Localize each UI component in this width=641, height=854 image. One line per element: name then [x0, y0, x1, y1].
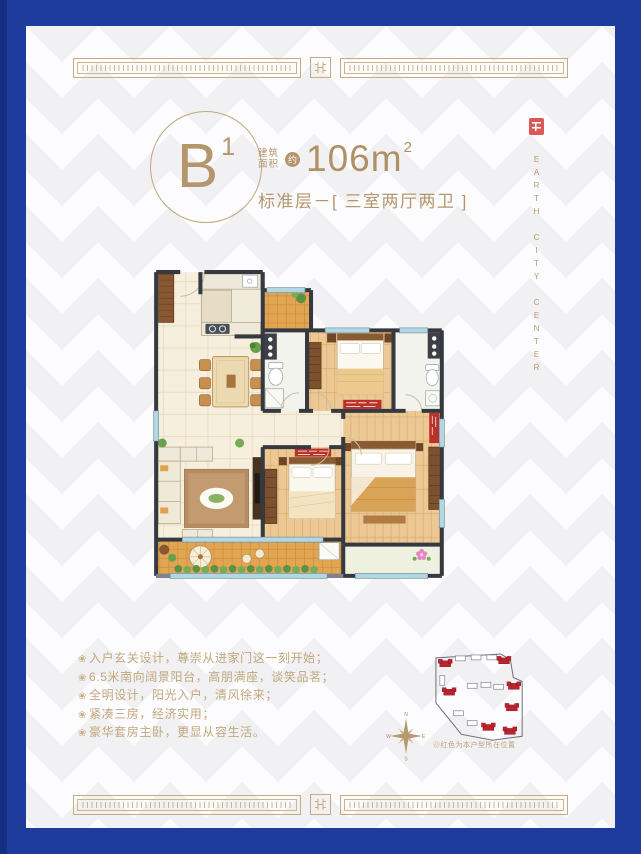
entry-hall — [159, 274, 174, 322]
poster-canvas: B1 建筑面积 约 106m 2 标准层－[ 三室两厅两卫 ] EARTH CI… — [26, 26, 615, 828]
svg-text:S: S — [404, 757, 408, 763]
highlighted-buildings — [438, 656, 520, 734]
brand-seal-icon — [529, 118, 544, 135]
flower-bay — [343, 545, 442, 576]
dimension-tag — [429, 413, 439, 443]
svg-text:E: E — [422, 734, 426, 740]
feature-item: ❀入户玄关设计，尊崇从进家门这一刻开始； — [78, 650, 334, 669]
flower-bullet-icon: ❀ — [78, 710, 87, 721]
flower-bullet-icon: ❀ — [78, 654, 87, 665]
floor-plan-image — [142, 260, 466, 604]
border-medallion-icon — [310, 794, 331, 815]
flower-bullet-icon: ❀ — [78, 673, 87, 684]
feature-item: ❀全明设计，阳光入户，清风徐来； — [78, 687, 334, 706]
floor-type-subtitle: 标准层－[ 三室两厅两卫 ] — [258, 187, 468, 212]
greek-key-box — [340, 58, 568, 78]
area-superscript: 2 — [404, 139, 412, 156]
plant — [235, 439, 244, 448]
compass-icon: N S W E — [386, 710, 426, 762]
flower-bullet-icon: ❀ — [78, 728, 87, 739]
unit-letter: B — [177, 136, 218, 198]
brand-rail: EARTH CITY CENTER — [524, 118, 548, 376]
approx-badge: 约 — [285, 152, 300, 167]
svg-text:N: N — [404, 712, 408, 718]
feature-item: ❀紧凑三房，经济实用； — [78, 706, 334, 725]
feature-item: ❀豪华套房主卧，更显从容生活。 — [78, 724, 334, 743]
greek-key-box — [73, 795, 301, 815]
site-location-map — [430, 652, 532, 750]
svg-text:W: W — [386, 734, 391, 740]
flower-bullet-icon: ❀ — [78, 691, 87, 702]
bathroom-2-fixtures — [426, 332, 441, 405]
brand-vertical-name: EARTH CITY CENTER — [525, 155, 547, 376]
feature-item: ❀6.5米南向阔景阳台，高朋满座，谈笑品茗； — [78, 669, 334, 688]
plant — [158, 439, 167, 448]
dimension-tag — [343, 400, 381, 409]
greek-key-box — [340, 795, 568, 815]
area-label: 建筑面积 — [258, 148, 279, 170]
flower-bullet-icon: ❀ — [433, 742, 441, 749]
area-value: 106m — [306, 138, 403, 180]
poster-frame: B1 建筑面积 约 106m 2 标准层－[ 三室两厅两卫 ] EARTH CI… — [0, 0, 641, 854]
unit-badge: B1 — [150, 111, 262, 223]
greek-key-border-bottom — [26, 794, 615, 815]
sitemap-caption: ❀红色为本户型所在位置 — [433, 740, 516, 750]
dimension-tag — [295, 449, 331, 457]
feature-list: ❀入户玄关设计，尊崇从进家门这一刻开始； ❀6.5米南向阔景阳台，高朋满座，谈笑… — [78, 650, 334, 743]
greek-key-border-top — [26, 57, 615, 78]
greek-key-box — [73, 58, 301, 78]
border-medallion-icon — [310, 57, 331, 78]
area-info: 建筑面积 约 106m 2 — [258, 138, 412, 180]
unit-superscript: 1 — [221, 133, 235, 162]
